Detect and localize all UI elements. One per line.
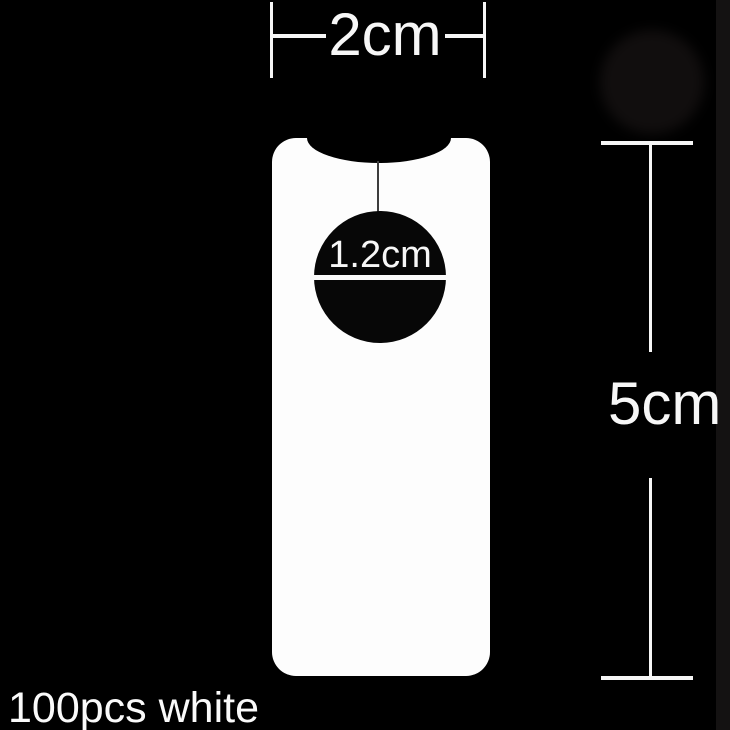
width-dim-label: 2cm xyxy=(323,5,447,65)
corner-shadow-smudge xyxy=(600,30,704,134)
height-dim-label: 5cm xyxy=(608,374,721,434)
width-dim-tick-left xyxy=(270,2,273,78)
quantity-caption: 100pcs white xyxy=(8,687,259,730)
width-dim-line-right xyxy=(445,34,486,38)
width-dim-line-left xyxy=(270,34,326,38)
right-edge-shade xyxy=(716,0,730,730)
hole-diameter-label: 1.2cm xyxy=(314,236,446,274)
height-dim-line-upper xyxy=(649,141,652,352)
tag-hanging-notch xyxy=(307,113,451,163)
height-dim-cap-bottom xyxy=(601,676,693,680)
width-dim-tick-right xyxy=(483,2,486,78)
height-dim-cap-top xyxy=(601,141,693,145)
height-dim-line-lower xyxy=(649,478,652,678)
product-photo: 1.2cm 2cm 5cm 100pcs white xyxy=(0,0,730,730)
notch-to-hole-line xyxy=(377,161,379,213)
